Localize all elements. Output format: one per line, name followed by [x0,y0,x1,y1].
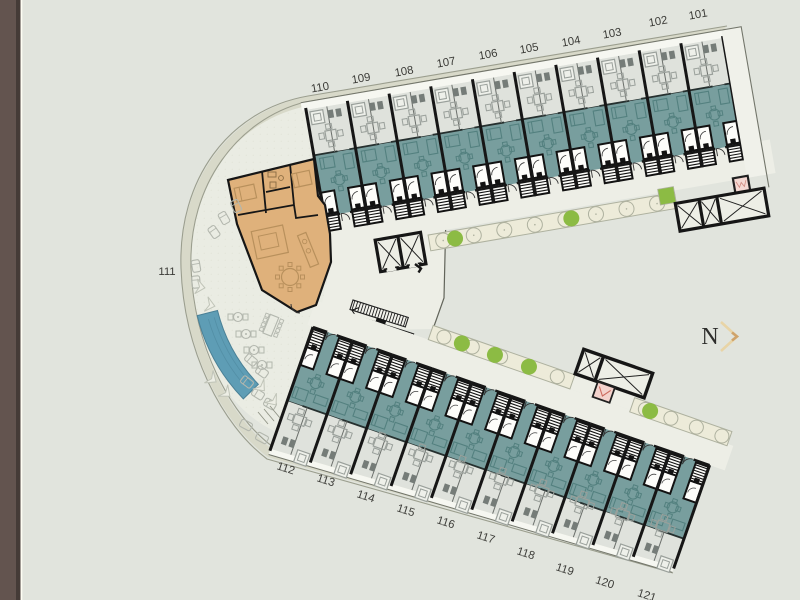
svg-text:N: N [701,324,718,350]
svg-text:111: 111 [158,266,175,278]
